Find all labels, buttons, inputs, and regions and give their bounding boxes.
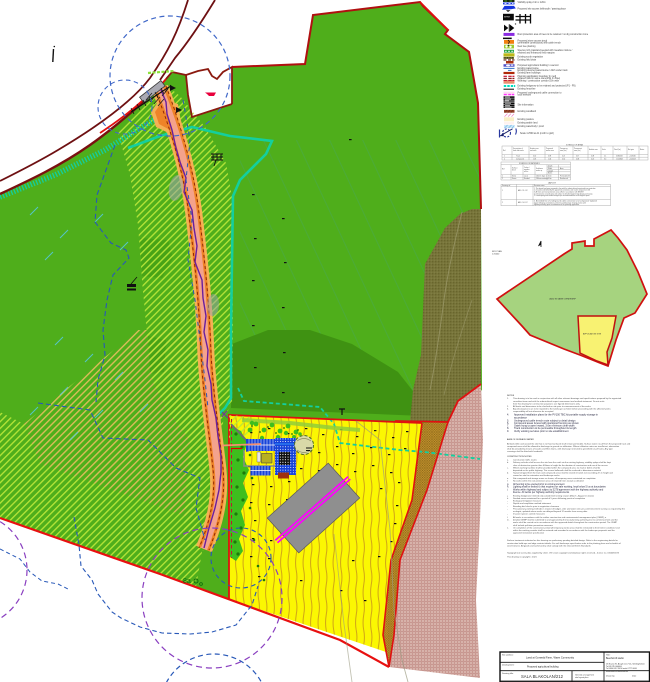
svg-text:Existing scrub vegetation: Existing scrub vegetation <box>518 56 544 59</box>
svg-text:reused on site for restoration: reused on site for restoration and lands… <box>513 474 560 477</box>
svg-text:Working / construction corrido: Working / construction corridor 10m wide <box>518 80 560 83</box>
svg-text:0.48: 0.48 <box>576 158 579 160</box>
svg-text:Sub-base: Sub-base <box>536 168 543 170</box>
svg-text:Breeding bird checks prior to: Breeding bird checks prior to vegetation… <box>513 505 560 508</box>
svg-text:Drawn by: Drawn by <box>606 675 614 677</box>
svg-text:crossings shall be fitted with: crossings shall be fitted with headwalls <box>507 450 543 453</box>
svg-text:Tel 0800 012 3456 mob 0777 000: Tel 0800 012 3456 mob 0777 0000 <box>606 668 638 670</box>
svg-text:Proposed agricultural building: Proposed agricultural building <box>527 666 559 669</box>
svg-text:Topographical survey data supp: Topographical survey data supplied by cl… <box>507 551 620 554</box>
svg-text:licence. All works per highway: licence. All works per highway authority… <box>513 491 570 494</box>
svg-text:Proposed site access bellmouth: Proposed site access bellmouth / passing… <box>518 7 567 10</box>
svg-text:finish: finish <box>512 170 516 172</box>
svg-text:Existing hedgerows trimmed onl: Existing hedgerows trimmed only outside … <box>513 494 594 497</box>
svg-text:Visibility splay 2.4m x 120m: Visibility splay 2.4m x 120m <box>518 1 546 4</box>
svg-text:Precautionary working methods: Precautionary working methods in respect… <box>513 507 626 510</box>
svg-text:Local: Local <box>524 175 528 177</box>
svg-text:AIMS OF SURFACE WATER: AIMS OF SURFACE WATER <box>507 438 534 441</box>
svg-text:Compound: Compound <box>516 158 524 160</box>
svg-text:1.18: 1.18 <box>533 158 536 160</box>
svg-text:and area: and area <box>530 150 536 152</box>
svg-text:Existing field drain: Existing field drain <box>518 58 537 61</box>
svg-text:works shall be carried out in: works shall be carried out in accordance… <box>513 521 618 524</box>
svg-text:Ecological mitigation measures: Ecological mitigation measures <box>513 500 542 503</box>
svg-text:area (ha): area (ha) <box>560 150 567 152</box>
svg-text:www.beechcroftstudio.uk: www.beechcroftstudio.uk <box>606 670 628 673</box>
svg-text:within the working corridor sh: within the working corridor shall be res… <box>513 529 616 532</box>
svg-text:supplier: supplier <box>524 169 530 171</box>
svg-text:Existing fenceline: Existing fenceline <box>518 88 537 91</box>
svg-text:Temporary: Temporary <box>560 148 568 150</box>
svg-text:1: 1 <box>502 190 503 192</box>
svg-text:1: 1 <box>504 156 505 158</box>
svg-text:All works in accordance with t: All works in accordance with the outline… <box>513 516 607 519</box>
svg-text:Development:: Development: <box>502 664 515 667</box>
svg-text:make up: make up <box>536 170 542 172</box>
svg-text:+1.03240: +1.03240 <box>629 156 636 158</box>
svg-text:detailed CEMP shall be submitt: detailed CEMP shall be submitted to and … <box>513 519 619 522</box>
svg-text:On completion of the construct: On completion of the construction period… <box>513 526 620 529</box>
svg-text:Drawing title:: Drawing title: <box>502 672 514 675</box>
svg-text:1.120844: 1.120844 <box>616 158 623 160</box>
svg-text:construction build-ups and edg: construction build-ups and edge restrain… <box>507 542 621 545</box>
svg-text:All land within and around the: All land within and around the site that… <box>507 442 631 445</box>
svg-text:SALA BLAKOLAN/212: SALA BLAKOLAN/212 <box>521 674 564 679</box>
svg-text:Proposed agricultural building: Proposed agricultural building / reservo… <box>518 64 559 67</box>
svg-text:Existing arable land: Existing arable land <box>518 122 539 125</box>
svg-text:New tree planting: New tree planting <box>518 45 537 48</box>
svg-text:3.4: 3.4 <box>604 158 606 160</box>
svg-text:2: 2 <box>504 158 505 160</box>
svg-text:CONSTRUCTION NOTES: CONSTRUCTION NOTES <box>507 456 532 458</box>
svg-text:0.08: 0.08 <box>591 156 594 158</box>
svg-text:2: 2 <box>502 178 503 180</box>
svg-text:Reptile and amphibian method s: Reptile and amphibian method statement <box>513 502 551 505</box>
svg-text:Site compound and storage area: Site compound and storage areas as shown… <box>513 477 597 480</box>
svg-text:shall include pollution preven: shall include pollution prevention measu… <box>513 524 553 527</box>
svg-text:Delivery vehicles shall access: Delivery vehicles shall access the site … <box>513 461 611 464</box>
svg-text:Existing culverted watercourse: Existing culverted watercourse / ditch u… <box>518 69 569 72</box>
svg-text:150mm Type 1: 150mm Type 1 <box>536 175 547 177</box>
svg-text:0.684032: 0.684032 <box>616 156 623 158</box>
svg-text:1:25000: 1:25000 <box>492 254 500 256</box>
svg-text:4.: 4. <box>507 414 509 417</box>
svg-text:deposited on the public highwa: deposited on the public highway. The acc… <box>513 469 601 472</box>
svg-text:LAND IN SAME OWNERSHIP: LAND IN SAME OWNERSHIP <box>549 298 577 301</box>
svg-text:Title:: Title: <box>606 653 611 656</box>
svg-text:Site information: Site information <box>518 103 535 106</box>
svg-text:Existing woodland: Existing woodland <box>518 110 537 113</box>
svg-text:Construction traffic routes: Construction traffic routes <box>513 459 537 462</box>
svg-text:This drawing is to be read in: This drawing is to be read in conjunctio… <box>513 397 622 400</box>
svg-text:9.: 9. <box>507 430 509 433</box>
svg-text:0.38: 0.38 <box>548 156 551 158</box>
svg-text:Permeable fill: Permeable fill <box>560 175 570 177</box>
svg-text:site layout plan: site layout plan <box>575 676 588 679</box>
svg-text:All levels and dimensions to b: All levels and dimensions to be checked … <box>513 405 591 408</box>
svg-text:Proposed: Proposed <box>546 148 553 150</box>
svg-text:0.22: 0.22 <box>591 158 594 160</box>
svg-text:Verify existing services prior: Verify existing services prior to site e… <box>514 430 569 433</box>
svg-text:Existing hedgerow to be retain: Existing hedgerow to be retained and pro… <box>518 85 576 88</box>
svg-text:Surface: Surface <box>512 168 518 170</box>
svg-text:0.42: 0.42 <box>533 156 536 158</box>
svg-text:Existing waterbody / pond: Existing waterbody / pond <box>518 125 545 128</box>
svg-text:shall be provided by means of: shall be provided by means of swales and… <box>507 448 614 451</box>
svg-text:seed mixtures. All goods and w: seed mixtures. All goods and workmanship… <box>507 544 591 547</box>
svg-text:SP/MT: SP/MT <box>504 17 511 19</box>
svg-text:consultant team and with the a: consultant team and with the arboricultu… <box>513 400 605 403</box>
svg-text:0.21: 0.21 <box>562 156 565 158</box>
svg-text:area (ha): area (ha) <box>574 150 581 152</box>
svg-text:Surface treatments indicated o: Surface treatments indicated on this dra… <box>507 539 618 542</box>
svg-text:ref no.: ref no. <box>524 171 529 173</box>
svg-text:+2.20413: +2.20413 <box>629 158 636 160</box>
svg-text:from this drawing for construc: from this drawing for construction purpo… <box>513 402 581 405</box>
svg-text:clear of obstruction greater t: clear of obstruction greater than 600mm … <box>513 464 608 467</box>
svg-text:Land at Gorsedd Farm, Waen Com: Land at Gorsedd Farm, Waen Community <box>526 655 575 659</box>
svg-text:Site address:: Site address: <box>502 654 514 657</box>
svg-text:Invasive species control measu: Invasive species control measures <box>513 513 545 516</box>
svg-text:works area: works area <box>546 150 554 152</box>
svg-text:Seeded areas maintained for a: Seeded areas maintained for a period of … <box>513 497 586 500</box>
svg-text:Any discrepancies are to be re: Any discrepancies are to be reported to … <box>513 408 611 411</box>
svg-text:Adjacent land in same ownershi: Adjacent land in same ownership (in blue… <box>518 77 561 80</box>
svg-text:local network: local network <box>518 94 532 97</box>
svg-text:1.04: 1.04 <box>548 158 551 160</box>
svg-text:1: 1 <box>502 175 503 177</box>
svg-text:Grass: Grass <box>512 178 516 180</box>
svg-text:General arrangement: General arrangement <box>575 673 594 676</box>
svg-text:Scale 1:2500 at A1 (north to g: Scale 1:2500 at A1 (north to grid) <box>520 132 554 135</box>
svg-text:APPLICATION SITE: APPLICATION SITE <box>583 333 602 336</box>
svg-text:Wheel washing facilities shall: Wheel washing facilities shall be provid… <box>513 466 601 469</box>
svg-text:KEY PLAN: KEY PLAN <box>492 250 502 253</box>
svg-text:Reinforced: Reinforced <box>560 178 568 180</box>
svg-text:retained and enhanced field ma: retained and enhanced field margins <box>518 51 556 54</box>
svg-text:8a: 8a <box>183 578 191 585</box>
svg-text:Topsoil stripped from the trac: Topsoil stripped from the track and comp… <box>513 472 614 475</box>
svg-text:Root protection area of trees: Root protection area of trees to be reta… <box>518 33 589 36</box>
svg-text:Track: Track <box>516 156 520 158</box>
svg-text:LAYOUT: LAYOUT <box>548 182 557 185</box>
svg-text:Seeded: Seeded <box>524 178 530 180</box>
svg-text:1. Amended line of underground: 1. Amended line of underground cable con… <box>534 200 597 203</box>
svg-text:Beechcroft studio: Beechcroft studio <box>606 657 624 660</box>
svg-text:Colour /: Colour / <box>524 167 530 169</box>
svg-text:2: 2 <box>502 202 503 204</box>
svg-text:ecologist, updated where works: ecologist, updated where works are delay… <box>513 510 588 513</box>
svg-text:(permeable construction) with: (permeable construction) with cable tren… <box>518 42 562 45</box>
svg-text:0.17: 0.17 <box>576 156 579 158</box>
svg-text:NOTES: NOTES <box>507 395 515 397</box>
svg-text:Existing farm buildings: Existing farm buildings <box>518 72 542 75</box>
svg-text:This drawing is copyright c 20: This drawing is copyright c 2021 <box>507 555 538 558</box>
svg-text:compound areas shall be allowe: compound areas shall be allowed to disch… <box>507 445 620 448</box>
svg-text:2.1: 2.1 <box>604 156 606 158</box>
svg-text:0.52: 0.52 <box>562 158 565 160</box>
svg-text:land and works: land and works <box>513 150 524 152</box>
svg-text:approved restoration specifica: approved restoration specification <box>513 532 545 535</box>
svg-text:Existing pasture: Existing pasture <box>518 118 535 121</box>
svg-text:Drawing ref: Drawing ref <box>502 185 511 187</box>
